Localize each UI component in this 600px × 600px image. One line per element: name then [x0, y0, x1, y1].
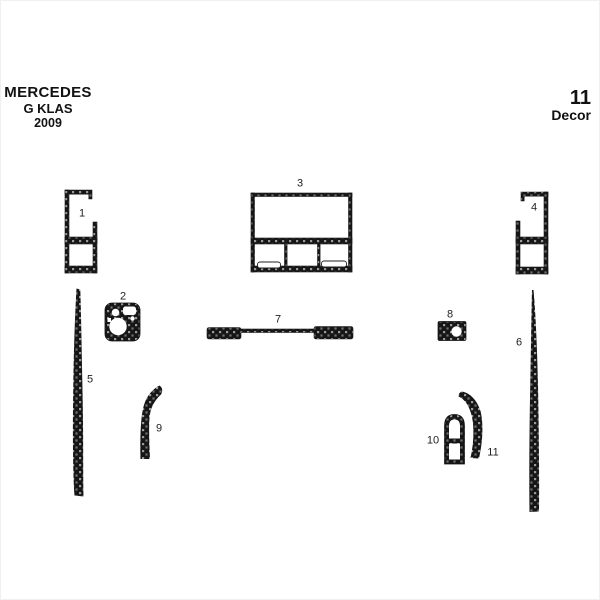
piece-label-8: 8: [447, 310, 453, 321]
trim-piece-2: [105, 303, 140, 341]
trim-kit-diagram: [1, 1, 600, 600]
product-image: MERCEDES G KLAS 2009 11 Decor: [0, 0, 600, 600]
piece-label-1: 1: [79, 209, 85, 220]
trim-piece-6: [529, 290, 539, 512]
trim-piece-1: [65, 190, 97, 273]
piece-label-11: 11: [487, 448, 498, 459]
piece-label-7: 7: [275, 315, 281, 326]
piece-label-2: 2: [120, 292, 126, 303]
piece-label-3: 3: [297, 179, 303, 190]
trim-piece-3: [251, 193, 352, 272]
trim-piece-10: [445, 415, 465, 465]
piece-label-10: 10: [427, 436, 439, 447]
trim-piece-8: [438, 322, 466, 341]
trim-piece-5: [73, 289, 84, 497]
trim-piece-7: [207, 327, 353, 340]
piece-label-6: 6: [516, 338, 522, 349]
piece-label-4: 4: [531, 203, 537, 214]
piece-label-5: 5: [87, 375, 93, 386]
piece-label-9: 9: [156, 424, 162, 435]
